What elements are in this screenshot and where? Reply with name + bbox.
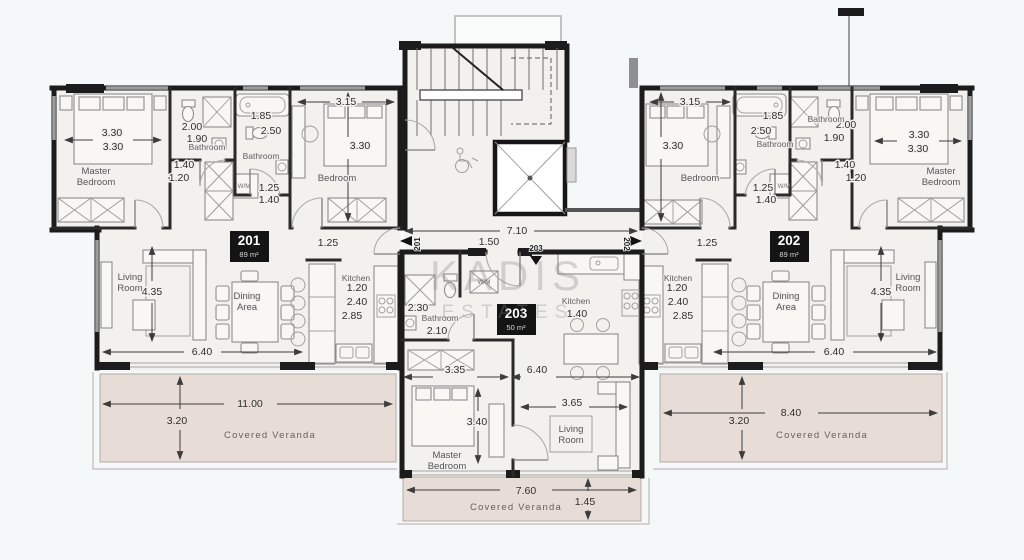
dimension-label: 3.20 xyxy=(729,415,750,427)
dimension-label: 3.30 xyxy=(350,140,371,152)
dimension-label: 7.10 xyxy=(507,225,528,237)
room-label: MasterBedroom xyxy=(922,166,961,188)
dimension-label: 2.85 xyxy=(342,310,363,322)
dimension-label: 1.25 xyxy=(697,237,718,249)
coffee-table xyxy=(882,300,904,330)
dimension-label: 1.20 xyxy=(667,282,688,294)
room-label: LivingRoom xyxy=(117,272,142,294)
dimension-label: 1.40 xyxy=(174,159,195,171)
unit-badge-area: 50 m² xyxy=(506,323,526,332)
dimension-label: 4.35 xyxy=(142,286,163,298)
fridge xyxy=(624,254,642,280)
floor-plan-page: 201 89 m² 202 89 m² 203 50 m² 3.303.302.… xyxy=(0,0,1024,560)
dimension-label: 3.30 xyxy=(909,129,930,141)
floor-plan-canvas: 201 89 m² 202 89 m² 203 50 m² 3.303.302.… xyxy=(0,0,1024,560)
dimension-label: 3.30 xyxy=(663,140,684,152)
dimension-label: 2.50 xyxy=(751,125,772,137)
dimension-label: 1.45 xyxy=(575,496,596,508)
unit-badge-id: 202 xyxy=(778,233,801,248)
dimension-label: 3.30 xyxy=(103,141,124,153)
veranda-label: Covered Veranda xyxy=(224,430,316,441)
room-label: Bathroom xyxy=(243,151,280,161)
dimension-label: 1.25 xyxy=(259,182,280,194)
dimension-label: 1.40 xyxy=(756,194,777,206)
elevator xyxy=(495,142,576,214)
veranda-201 xyxy=(100,374,396,462)
appliance-label: W/M xyxy=(238,183,251,190)
dimension-label: 1.85 xyxy=(251,110,272,122)
desk xyxy=(292,106,305,178)
dimension-label: 2.00 xyxy=(182,121,203,133)
island xyxy=(564,334,618,364)
dimension-label: 1.20 xyxy=(169,172,190,184)
dimension-label: 3.15 xyxy=(336,96,357,108)
dimension-label: 7.60 xyxy=(516,485,537,497)
desk xyxy=(717,106,730,178)
dimension-label: 11.00 xyxy=(237,398,263,410)
dimension-label: 2.40 xyxy=(668,296,689,308)
dimension-label: 8.40 xyxy=(781,407,802,419)
veranda-label: Covered Veranda xyxy=(776,430,868,441)
dimension-label: 3.30 xyxy=(102,127,123,139)
dimension-label: 4.35 xyxy=(871,286,892,298)
dimension-label: 6.40 xyxy=(192,346,213,358)
dresser xyxy=(489,404,504,457)
dimension-label: 3.30 xyxy=(908,143,929,155)
watermark-line2: ESTATES xyxy=(442,302,575,323)
dimension-label: 1.25 xyxy=(753,182,774,194)
dimension-label: 1.20 xyxy=(347,282,368,294)
dimension-label: 1.40 xyxy=(835,159,856,171)
room-label: Kitchen xyxy=(664,273,693,283)
dimension-label: 6.40 xyxy=(527,364,548,376)
room-label: Bedroom xyxy=(318,173,357,184)
unit-badge-area: 89 m² xyxy=(239,250,259,259)
room-label: DiningArea xyxy=(234,291,261,313)
dimension-label: 3.40 xyxy=(467,416,488,428)
room-label: Bathroom xyxy=(808,114,845,124)
dimension-label: 3.65 xyxy=(562,397,583,409)
room-label: Kitchen xyxy=(342,273,371,283)
tv-unit xyxy=(925,262,936,328)
tv-unit xyxy=(101,262,112,328)
dimension-label: 1.90 xyxy=(824,132,845,144)
dimension-label: 1.20 xyxy=(846,172,867,184)
room-label: DiningArea xyxy=(773,291,800,313)
veranda-label: Covered Veranda xyxy=(470,502,562,513)
veranda-203 xyxy=(403,477,641,521)
dimension-label: 2.40 xyxy=(347,296,368,308)
room-label: LivingRoom xyxy=(895,272,920,294)
dimension-label: 2.10 xyxy=(427,325,448,337)
dimension-label: 6.40 xyxy=(824,346,845,358)
watermark-line1: KADIS xyxy=(430,252,586,299)
dimension-label: 2.85 xyxy=(673,310,694,322)
room-label: MasterBedroom xyxy=(428,450,467,472)
room-label: Bathroom xyxy=(757,139,794,149)
unit-badge-id: 201 xyxy=(238,233,261,248)
dimension-label: 2.50 xyxy=(261,125,282,137)
entry-label-202: 202 xyxy=(622,237,631,251)
dimension-label: 3.35 xyxy=(445,364,466,376)
room-label: Bathroom xyxy=(189,142,226,152)
dimension-label: 3.20 xyxy=(167,415,188,427)
dimension-label: 1.50 xyxy=(479,236,500,248)
appliance-label: W/M xyxy=(778,183,791,190)
room-label: MasterBedroom xyxy=(77,166,116,188)
dimension-label: 1.25 xyxy=(318,237,339,249)
room-label: LivingRoom xyxy=(558,424,583,446)
dimension-label: 1.85 xyxy=(763,110,784,122)
shower xyxy=(203,97,231,127)
entry-label-201: 201 xyxy=(413,237,422,251)
unit-badge-area: 89 m² xyxy=(779,250,799,259)
dimension-label: 3.15 xyxy=(680,96,701,108)
dimension-label: 1.40 xyxy=(259,194,280,206)
toilet xyxy=(182,100,195,122)
room-label: Bedroom xyxy=(681,173,720,184)
